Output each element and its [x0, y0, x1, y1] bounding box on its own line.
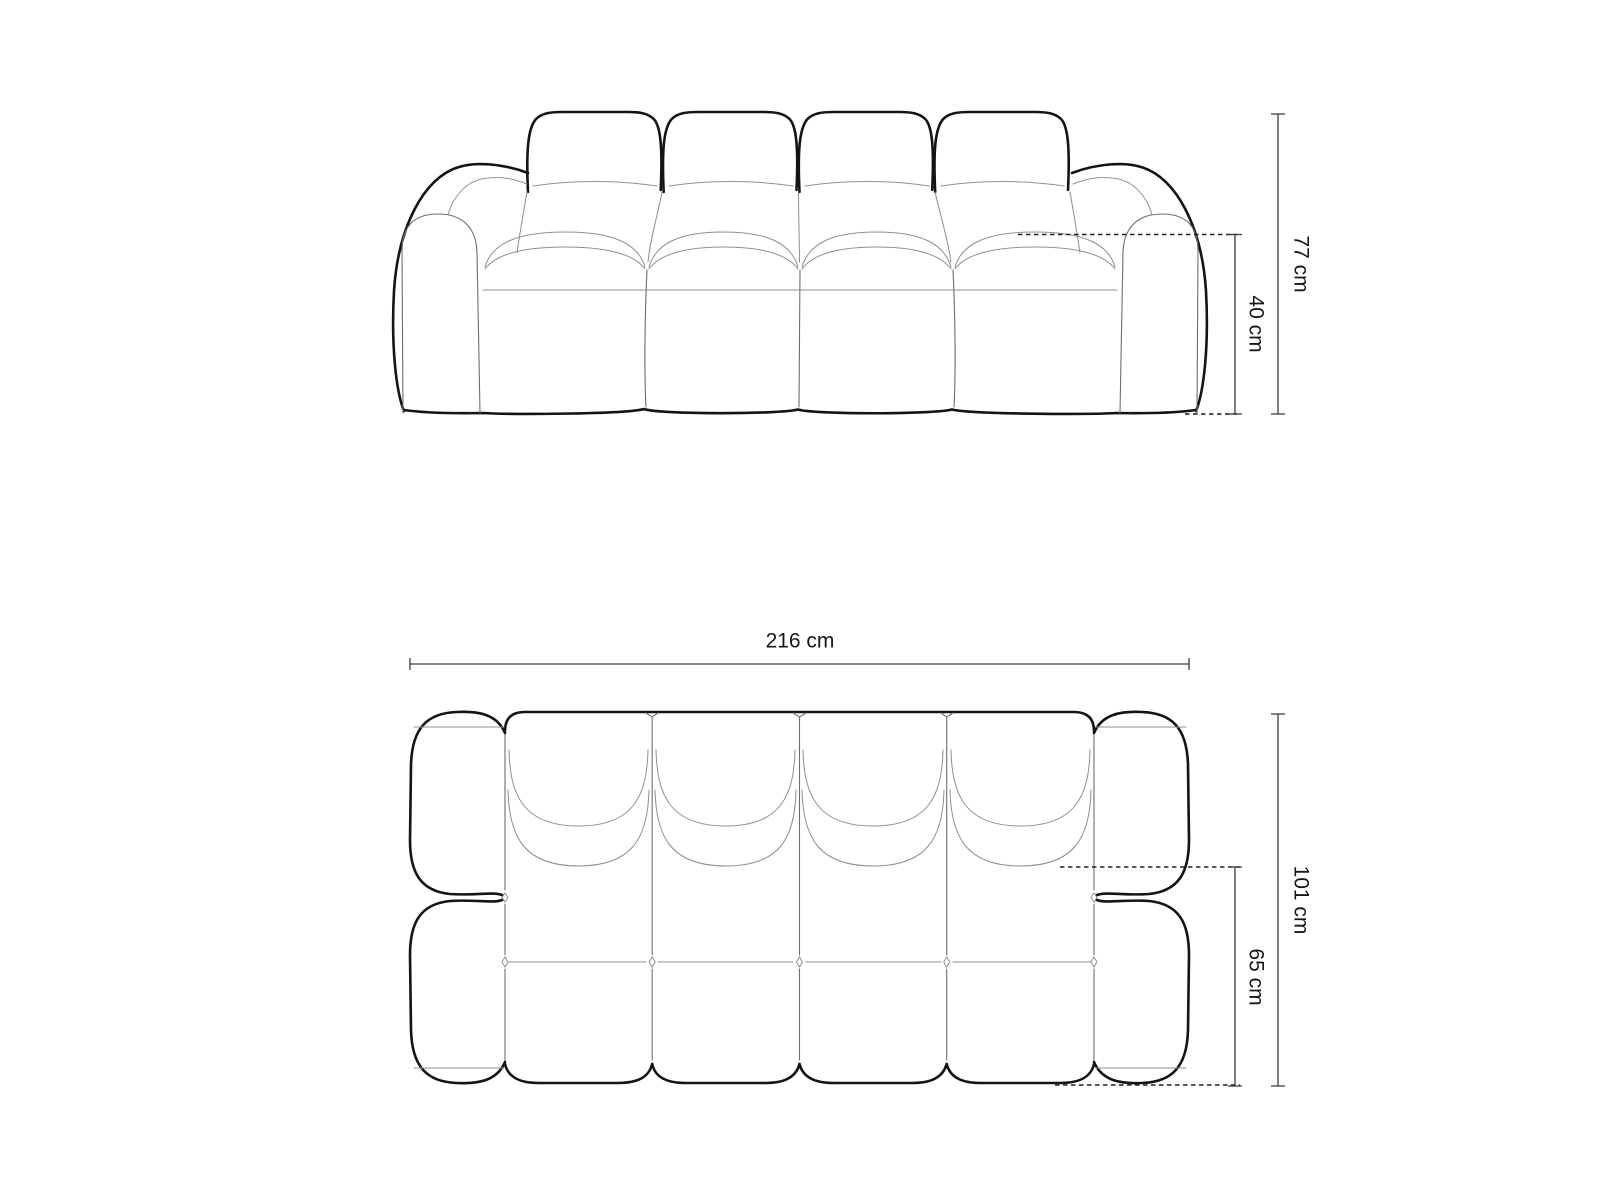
backrest-cushion-curve — [655, 790, 796, 866]
left-arm-outline — [393, 164, 528, 411]
sofa-bottom-edge — [404, 409, 1196, 414]
body-front-edge — [800, 1064, 947, 1083]
seam-node — [502, 957, 508, 967]
front-sofa-drawing — [393, 112, 1207, 414]
seat-cushion-arc — [485, 232, 645, 267]
seam-node — [1091, 957, 1097, 967]
backrest-cushion-curve — [509, 750, 648, 826]
right-arm-front-lobe — [1094, 898, 1189, 1083]
sofa-technical-drawing: 77 cm 40 cm — [0, 0, 1600, 1200]
overall-depth-label: 101 cm — [1290, 866, 1313, 935]
backrest-seam — [799, 192, 800, 262]
seam-node — [944, 957, 950, 967]
seat-cushion-arc — [955, 232, 1115, 267]
backrest-cushion-curve — [802, 790, 944, 866]
top-view: 216 cm 101 cm 65 cm — [410, 630, 1313, 1087]
seat-seam — [645, 270, 647, 407]
left-arm-front-lobe — [410, 898, 505, 1083]
backrest-seam — [517, 192, 527, 253]
body-front-edge — [652, 1064, 799, 1083]
headrest-seam — [805, 182, 929, 187]
back-edge-notch — [646, 713, 658, 717]
left-arm-inner-seam — [448, 178, 527, 216]
seat-cushion-arc — [649, 247, 798, 269]
left-arm-back-lobe — [410, 712, 505, 897]
seat-seam — [799, 270, 800, 407]
seam-node — [797, 957, 803, 967]
headrest-seam — [669, 182, 793, 187]
overall-height-label: 77 cm — [1290, 235, 1313, 292]
headrest-seam — [941, 182, 1064, 187]
overall-width-label: 216 cm — [766, 630, 835, 653]
backrest-seam — [1070, 192, 1080, 253]
back-edge-notch — [941, 713, 953, 717]
headrest-cushion — [663, 112, 797, 192]
body-front-edge — [505, 1064, 652, 1083]
right-arm-outline — [1072, 164, 1207, 411]
headrest-cushion — [527, 112, 661, 192]
headrest-cushion — [799, 112, 933, 192]
seat-cushion-arc — [649, 232, 798, 267]
seam-node — [649, 957, 655, 967]
back-edge-notch — [793, 713, 806, 717]
top-dimensions: 216 cm 101 cm 65 cm — [410, 630, 1313, 1087]
backrest-cushion-curve — [508, 790, 649, 866]
front-dimensions: 77 cm 40 cm — [1018, 114, 1313, 414]
seat-cushion-arc — [485, 247, 645, 269]
top-sofa-drawing — [410, 712, 1189, 1083]
backrest-seam — [648, 192, 662, 262]
body-front-edge — [947, 1064, 1094, 1083]
front-view: 77 cm 40 cm — [393, 112, 1312, 414]
headrest-seam — [533, 182, 657, 187]
seat-height-label: 40 cm — [1245, 295, 1268, 352]
right-arm-back-lobe — [1094, 712, 1189, 897]
seat-cushion-arc — [802, 232, 951, 267]
right-arm-inner-seam — [1073, 178, 1152, 216]
backrest-cushion-curve — [951, 750, 1090, 826]
backrest-cushion-curve — [950, 790, 1091, 866]
left-arm-panel — [402, 214, 480, 413]
seat-cushion-arc — [955, 247, 1115, 269]
backrest-cushion-curve — [803, 750, 943, 826]
seat-depth-label: 65 cm — [1245, 948, 1268, 1005]
seat-seam — [953, 270, 955, 407]
right-arm-panel — [1120, 214, 1198, 413]
seat-cushion-arc — [802, 247, 951, 269]
dimension-drawing: 77 cm 40 cm — [0, 0, 1600, 1200]
backrest-cushion-curve — [656, 750, 795, 826]
headrest-cushion — [934, 112, 1068, 192]
